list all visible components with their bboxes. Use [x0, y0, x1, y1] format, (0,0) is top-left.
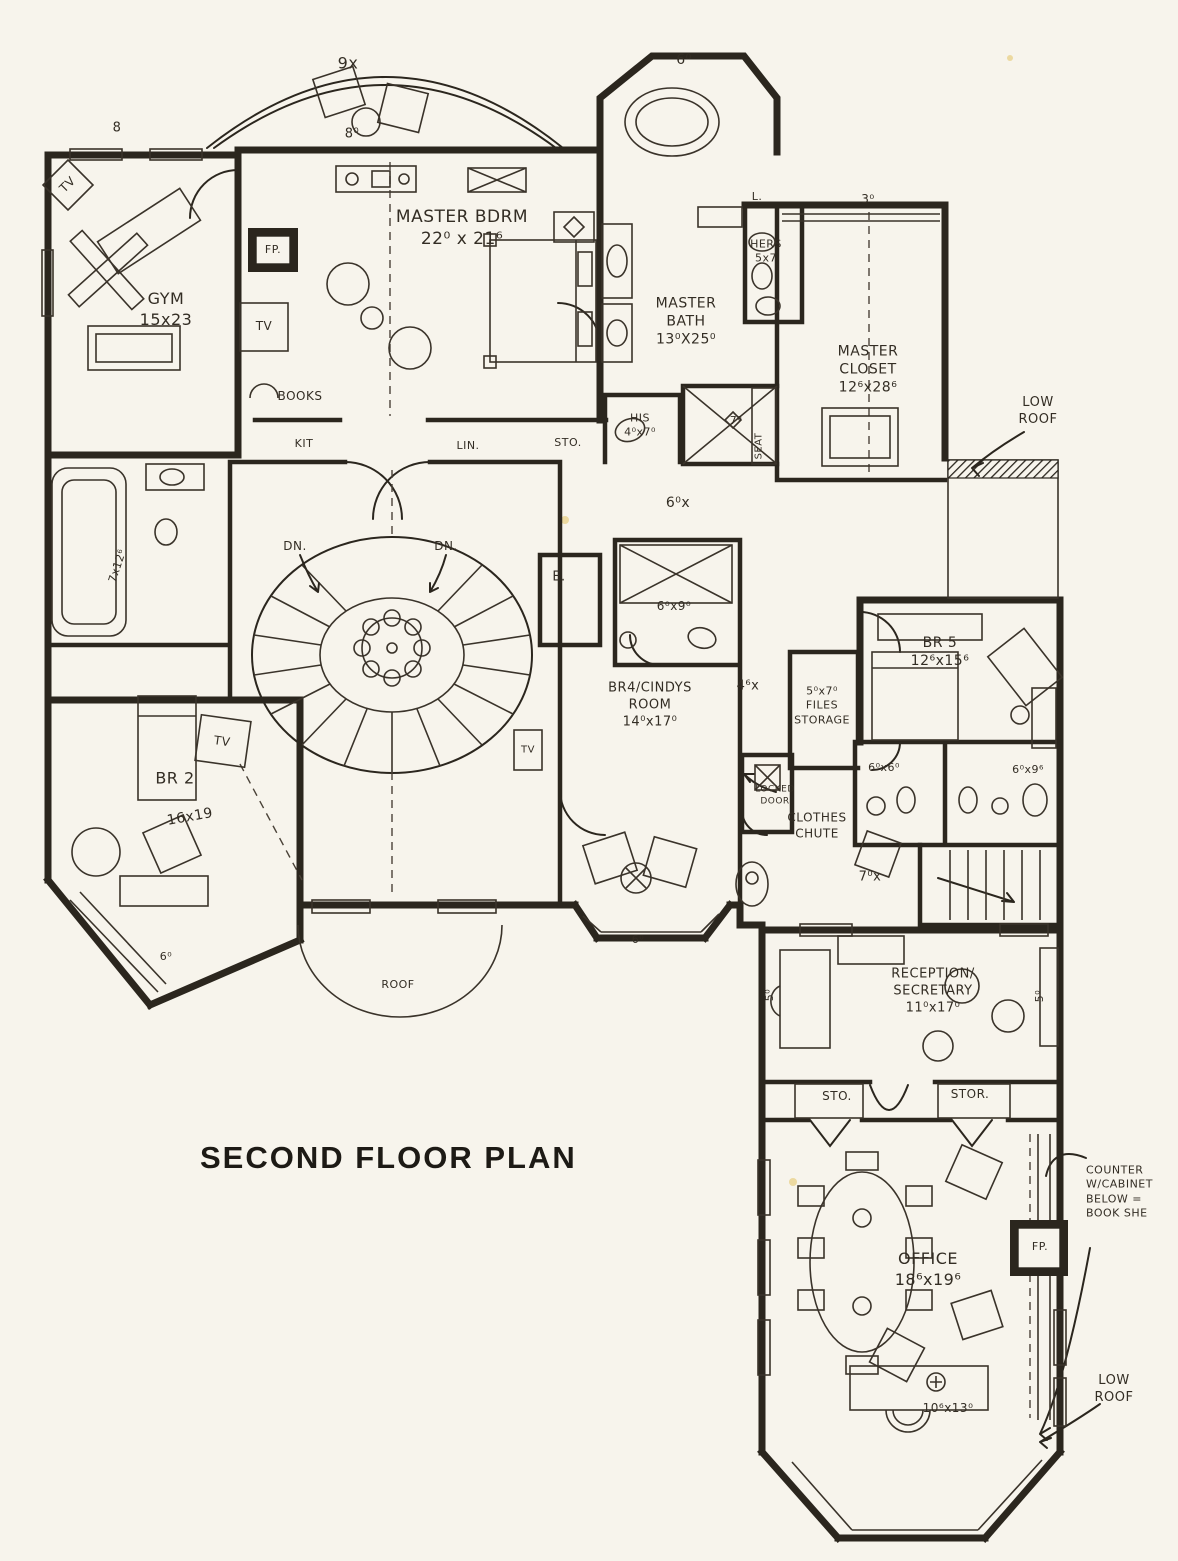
- armchair: [389, 327, 431, 369]
- label-l: L.: [752, 190, 763, 204]
- guest-chair: [992, 1000, 1024, 1032]
- master-tv: TV: [256, 319, 273, 335]
- book-shelf: [250, 384, 278, 398]
- reception-dim-5-right: 5⁰: [1033, 990, 1047, 1002]
- toilet: [959, 787, 977, 813]
- balcony-arc: [207, 77, 563, 148]
- books: BOOKS: [278, 389, 323, 405]
- gym-table: [88, 326, 180, 370]
- balcony-chair: [378, 84, 428, 133]
- dim-top-left-8: 8: [113, 121, 122, 138]
- room-gym: GYM 15x23: [140, 289, 193, 331]
- guest-chair: [923, 1031, 953, 1061]
- office-sto: STO.: [822, 1089, 852, 1105]
- roof: ROOF: [381, 978, 414, 992]
- master-fp: FP.: [265, 243, 281, 257]
- reception-console: [838, 936, 904, 964]
- br4-chair: [583, 832, 637, 884]
- room-br5: BR 5 12⁶x15⁶: [911, 634, 970, 670]
- closet-kit: KIT: [295, 437, 314, 451]
- tub: [1023, 784, 1047, 816]
- counter-note: COUNTER W/CABINET BELOW = BOOK SHE: [1086, 1163, 1153, 1220]
- bath-dim-6x9: 6⁰x9⁰: [657, 599, 692, 615]
- sink: [620, 632, 636, 648]
- files-storage: 5⁰x7⁰ FILES STORAGE: [794, 685, 850, 728]
- stairs-dn-right: DN.: [434, 539, 458, 555]
- balcony-dim-9x: 9x: [338, 54, 359, 75]
- side-table: [361, 307, 383, 329]
- stairs-dim-7x: 7⁰x: [859, 870, 882, 887]
- partitions-sto-row: [765, 1082, 1060, 1120]
- counter: [1038, 1134, 1050, 1420]
- room-master-closet: MASTER CLOSET 12⁶x28⁶: [838, 343, 899, 398]
- bath-dim-6x9b: 6⁰x9⁶: [1012, 763, 1044, 777]
- left-vanity: [146, 464, 204, 490]
- toilet: [897, 787, 915, 813]
- sink: [867, 797, 885, 815]
- low-roof-bottom: LOW ROOF: [1095, 1373, 1134, 1407]
- br2-chair: [72, 828, 120, 876]
- chandelier: [354, 610, 430, 686]
- clothes-chute: CLOTHES CHUTE: [787, 810, 846, 841]
- room-office: OFFICE 18⁶x19⁶: [895, 1249, 962, 1291]
- closet-dim-3: 3⁰: [861, 192, 874, 208]
- br5-desk: [1032, 688, 1056, 748]
- floor-plan-sheet: SECOND FLOOR PLAN 89x8⁰6⁰TVMASTER BDRM 2…: [0, 0, 1178, 1561]
- closet-e: E.: [552, 570, 565, 587]
- hall-dim-6x: 6⁰x: [666, 494, 690, 512]
- hall-dim-4x: 4⁶x: [737, 679, 760, 696]
- walls-br2: [48, 700, 300, 1005]
- chair: [798, 1290, 824, 1310]
- stairs-dn-left: DN.: [283, 539, 307, 555]
- weight-machine-a: [68, 233, 147, 306]
- bath-dim-6x6: 6⁰x6⁰: [868, 761, 900, 775]
- bay-dim-6-left: 6⁰: [160, 950, 172, 964]
- shower-dim-7: 7⁰: [730, 414, 742, 428]
- toilet: [686, 625, 718, 651]
- partitions-core: [48, 420, 606, 905]
- his-closet: HIS 4⁰x7⁰: [624, 412, 656, 441]
- tower-dim-6: 6⁰: [676, 51, 692, 69]
- lounge-chair: [951, 1290, 1003, 1339]
- room-master-bdrm: MASTER BDRM 22⁰ x 21⁶: [396, 206, 528, 250]
- room-br2: BR 2: [155, 769, 194, 790]
- br2-tv: TV: [213, 733, 232, 751]
- chair: [846, 1152, 878, 1170]
- locked-door: LOCKED DOOR: [755, 784, 795, 807]
- walls-right-wing: [762, 845, 1060, 1538]
- room-br4: BR4/CINDYS ROOM 14⁰x17⁰: [608, 681, 692, 732]
- closet-lin: LIN.: [456, 439, 479, 453]
- office-fp: FP.: [1032, 1240, 1048, 1254]
- low-roof-box: [948, 460, 1058, 598]
- reception-dim-5-left: 5⁰: [763, 989, 777, 1001]
- office-desk-dim: 10⁶x13⁰: [923, 1401, 974, 1417]
- closet-sto: STO.: [554, 436, 581, 450]
- treadmill: [98, 188, 201, 273]
- chair: [798, 1186, 824, 1206]
- armchair: [327, 263, 369, 305]
- partitions-baths-row: [855, 742, 1060, 845]
- br2-desk: [120, 876, 208, 906]
- roof-dome: [298, 925, 502, 1017]
- closet-rods: [782, 214, 940, 221]
- reception-desk: [780, 950, 830, 1048]
- floor-plan-title: SECOND FLOOR PLAN: [200, 1140, 577, 1176]
- low-roof-top: LOW ROOF: [1019, 395, 1058, 429]
- br4-bay-window: [583, 914, 719, 932]
- room-master-bath: MASTER BATH 13⁰X25⁰: [656, 295, 717, 350]
- hers-closet: HERS 5x7: [750, 238, 782, 267]
- chair: [906, 1186, 932, 1206]
- shower-seat: SEAT: [753, 433, 766, 460]
- sink: [992, 798, 1008, 814]
- br5-chair: [988, 628, 1062, 705]
- br2-bay-window: [70, 892, 166, 992]
- partitions-backstairs: [920, 845, 1060, 925]
- left-toilet: [155, 519, 177, 545]
- console: [336, 166, 416, 192]
- stair-treads-back: [950, 850, 1040, 920]
- br4-tv: TV: [521, 744, 535, 757]
- lounge-chair: [946, 1145, 1002, 1199]
- bay-dim-6-mid: 6⁰: [632, 933, 644, 947]
- makeup-counter: [698, 207, 742, 227]
- master-bed: [490, 240, 596, 362]
- stair-inner: [320, 598, 464, 712]
- balcony-dim-8: 8⁰: [345, 127, 359, 144]
- weight-machine-b: [70, 230, 143, 309]
- stair-treads: [254, 565, 530, 773]
- office-stor: STOR.: [951, 1087, 990, 1103]
- room-reception: RECEPTION/ SECRETARY 11⁰x17⁰: [891, 967, 975, 1018]
